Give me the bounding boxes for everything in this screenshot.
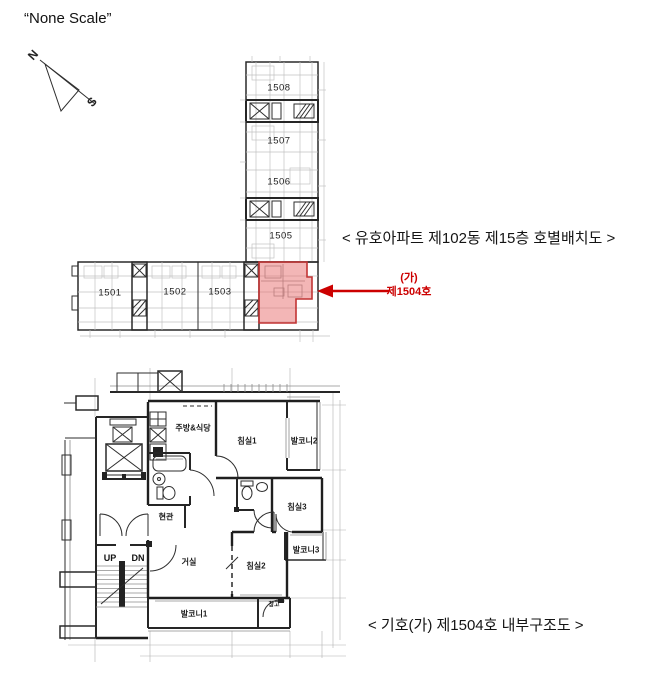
bathroom-fixtures	[148, 453, 214, 505]
room-label-entrance: 현관	[159, 512, 174, 523]
floor-plan-core	[60, 417, 148, 640]
floor-plan-title: < 기호(가) 제1504호 내부구조도 >	[368, 614, 584, 635]
room-label-living: 거실	[182, 557, 197, 568]
floor-plan-top-band	[64, 371, 340, 410]
unit-label-1503: 1503	[208, 287, 231, 298]
site-plan-drawing	[72, 56, 389, 342]
annotation-symbol: (가)	[387, 272, 432, 286]
site-plan-title: < 유호아파트 제102동 제15층 호별배치도 >	[342, 227, 615, 248]
unit-label-1502: 1502	[163, 287, 186, 298]
room-label-bedroom1: 침실1	[237, 436, 256, 447]
room-label-balcony2: 발코니2	[291, 436, 318, 447]
annotation-unit: 제1504호	[387, 286, 432, 300]
room-label-bedroom2: 침실2	[246, 561, 265, 572]
room-label-balcony3: 발코니3	[293, 545, 320, 556]
stairs-up-label: UP	[104, 553, 117, 563]
room-label-balcony1: 발코니1	[181, 609, 208, 620]
unit-1504-highlight	[259, 262, 312, 323]
stairs-down-label: DN	[132, 553, 145, 563]
room-label-storage: 창고	[268, 600, 279, 609]
room-label-kitchen: 주방&식당	[175, 423, 210, 434]
scale-note: “None Scale”	[24, 10, 112, 27]
unit-label-1506: 1506	[267, 177, 290, 188]
drawing-layer	[0, 0, 662, 700]
bathroom2-fixtures	[241, 481, 268, 500]
unit-label-1508: 1508	[267, 83, 290, 94]
unit-label-1501: 1501	[98, 288, 121, 299]
unit-1504-annotation: (가) 제1504호	[387, 272, 432, 300]
unit-label-1505: 1505	[269, 231, 292, 242]
unit-label-1507: 1507	[267, 136, 290, 147]
document-page: “None Scale” N S 1508 1507 1506 1505 150…	[0, 0, 662, 700]
room-label-bedroom3: 침실3	[287, 502, 306, 513]
annotation-arrow-icon	[317, 285, 389, 298]
